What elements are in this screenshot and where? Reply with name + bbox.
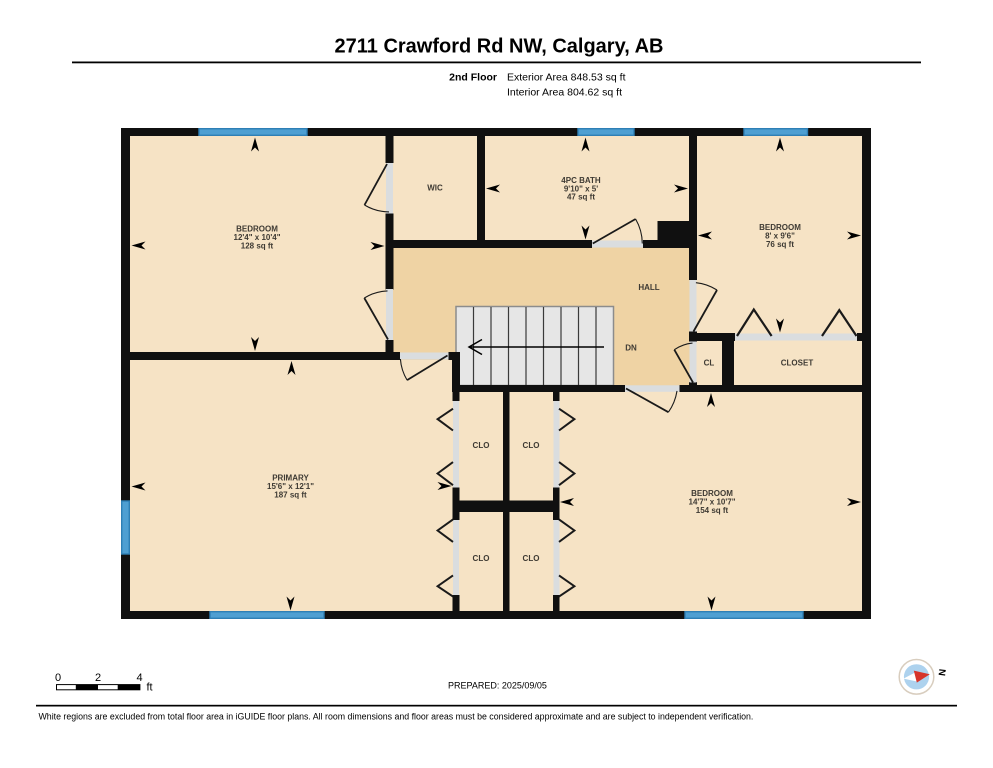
svg-text:CL: CL xyxy=(704,359,715,368)
svg-text:76 sq ft: 76 sq ft xyxy=(766,240,794,249)
svg-text:187 sq ft: 187 sq ft xyxy=(274,491,307,500)
svg-text:47 sq ft: 47 sq ft xyxy=(567,193,595,202)
svg-text:2nd Floor: 2nd Floor xyxy=(449,71,497,83)
svg-text:CLO: CLO xyxy=(523,441,540,450)
svg-text:CLO: CLO xyxy=(473,441,490,450)
svg-text:0: 0 xyxy=(55,672,61,684)
svg-text:2711 Crawford Rd NW, Calgary,: 2711 Crawford Rd NW, Calgary, AB xyxy=(335,36,664,58)
svg-text:N: N xyxy=(936,668,948,676)
svg-text:White regions are excluded fro: White regions are excluded from total fl… xyxy=(39,712,754,722)
svg-text:DN: DN xyxy=(625,344,637,353)
svg-text:CLO: CLO xyxy=(473,554,490,563)
svg-text:154 sq ft: 154 sq ft xyxy=(696,506,729,515)
svg-text:CLOSET: CLOSET xyxy=(781,358,814,367)
svg-text:128 sq ft: 128 sq ft xyxy=(241,242,274,251)
svg-text:Interior Area 804.62 sq ft: Interior Area 804.62 sq ft xyxy=(507,86,622,98)
svg-text:4: 4 xyxy=(136,672,142,684)
svg-text:ft: ft xyxy=(147,682,153,694)
svg-text:HALL: HALL xyxy=(638,283,659,292)
svg-text:WIC: WIC xyxy=(427,184,443,193)
svg-text:2: 2 xyxy=(95,672,101,684)
svg-text:PREPARED: 2025/09/05: PREPARED: 2025/09/05 xyxy=(448,681,547,691)
svg-text:CLO: CLO xyxy=(523,554,540,563)
svg-text:Exterior Area 848.53 sq ft: Exterior Area 848.53 sq ft xyxy=(507,71,626,83)
